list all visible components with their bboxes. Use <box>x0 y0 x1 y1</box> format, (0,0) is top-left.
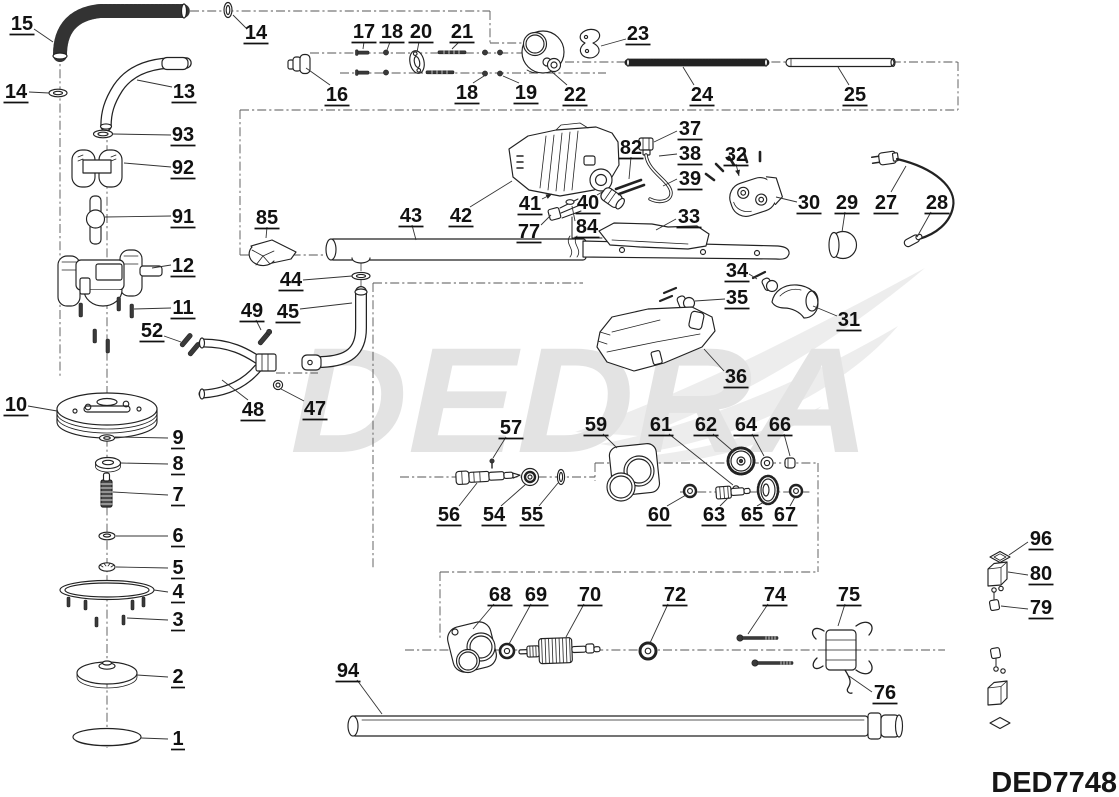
part-35-pin-set <box>660 288 695 309</box>
part-label-76: 76 <box>849 676 898 704</box>
part-8-bearing-ring <box>96 458 121 472</box>
part-label-85: 85 <box>255 207 280 238</box>
part-label-54: 54 <box>482 484 527 526</box>
part-label-44: 44 <box>279 269 353 291</box>
part-number: 37 <box>679 118 701 140</box>
part-47-nut <box>273 380 282 389</box>
leader-line <box>891 166 906 192</box>
part-22-gear-head <box>522 31 564 73</box>
leader-line <box>164 336 181 342</box>
leader-line <box>127 618 168 620</box>
leader-line <box>683 67 694 85</box>
part-15-hose <box>53 4 187 59</box>
part-number: 44 <box>280 269 303 291</box>
part-42-motor-housing <box>509 123 619 196</box>
part-number: 62 <box>695 414 717 436</box>
part-29-collar <box>829 232 857 259</box>
leader-line <box>917 212 931 237</box>
leader-line <box>748 604 768 634</box>
part-label-13: 13 <box>137 80 197 103</box>
part-55-washer <box>557 470 564 485</box>
part-number: 41 <box>519 193 541 215</box>
part-label-37: 37 <box>654 118 703 142</box>
part-number: 5 <box>172 557 183 579</box>
leader-line <box>601 39 626 46</box>
brand-watermark: DEDRA <box>290 268 925 484</box>
part-number: 14 <box>245 22 268 44</box>
part-23-clamp <box>580 29 599 58</box>
part-74-screws <box>737 635 793 666</box>
part-54-bearing <box>522 469 539 486</box>
part-label-28: 28 <box>917 192 950 237</box>
part-number: 23 <box>627 23 649 45</box>
part-16-coupler <box>288 55 310 74</box>
leader-line <box>459 483 477 506</box>
part-94-lower-tube <box>348 713 903 739</box>
part-label-70: 70 <box>566 584 603 637</box>
part-label-11: 11 <box>134 297 196 319</box>
leader-line <box>105 216 171 217</box>
leader-line <box>28 406 57 411</box>
part-65-bevel-gear <box>758 476 778 504</box>
exploded-parts-diagram-page: DEDRA <box>0 0 1119 797</box>
part-number: 4 <box>172 581 184 603</box>
part-93-washer <box>94 130 113 138</box>
part-label-22: 22 <box>551 71 588 106</box>
leader-line <box>113 134 171 135</box>
part-label-8: 8 <box>121 453 185 475</box>
part-number: 16 <box>326 84 348 106</box>
part-label-68: 68 <box>473 584 513 629</box>
part-number: 32 <box>725 144 747 166</box>
part-label-69: 69 <box>509 584 549 644</box>
part-label-94: 94 <box>336 660 383 714</box>
part-label-42: 42 <box>449 181 513 227</box>
part-number: 2 <box>172 666 183 688</box>
part-label-15: 15 <box>10 13 54 42</box>
part-label-14: 14 <box>4 81 50 103</box>
part-label-41: 41 <box>518 193 553 215</box>
part-number: 55 <box>521 504 543 526</box>
part-19-nuts <box>497 50 502 76</box>
part-number: 59 <box>585 414 607 436</box>
part-number: 31 <box>838 309 860 331</box>
part-number: 1 <box>172 728 183 750</box>
part-number: 74 <box>764 584 787 606</box>
watermark-text: DEDRA <box>290 316 870 484</box>
leader-line <box>300 303 352 309</box>
leader-line <box>134 308 171 309</box>
part-number: 61 <box>650 414 672 436</box>
part-label-60: 60 <box>647 495 687 526</box>
part-label-25: 25 <box>838 67 868 106</box>
part-68-end-cap <box>445 619 499 674</box>
part-number: 79 <box>1030 597 1052 619</box>
part-80-carbon-brush <box>988 562 1007 586</box>
leader-line <box>303 276 352 280</box>
part-label-29: 29 <box>835 192 860 232</box>
part-label-56: 56 <box>437 483 478 526</box>
part-label-91: 91 <box>105 206 196 228</box>
part-10-disc <box>57 393 157 438</box>
part-24-flexible-shaft <box>627 59 768 66</box>
part-75-stator <box>813 622 873 693</box>
part-67-bearing <box>790 485 802 497</box>
part-69-bearing <box>500 644 514 658</box>
part-82-pins <box>616 180 644 194</box>
leader-line <box>417 42 419 52</box>
part-number: 94 <box>337 660 360 682</box>
part-number: 42 <box>450 205 472 227</box>
part-number: 63 <box>703 504 725 526</box>
part-number: 82 <box>620 137 642 159</box>
part-label-24: 24 <box>683 67 715 106</box>
part-7-threaded-stud <box>101 473 112 507</box>
part-label-19: 19 <box>503 76 539 104</box>
leader-line <box>1008 572 1028 575</box>
part-number: 80 <box>1030 563 1052 585</box>
part-number: 27 <box>875 192 897 214</box>
part-43-boom-tube <box>326 236 789 263</box>
leader-line <box>113 492 168 495</box>
part-2-pad-disc <box>77 661 137 688</box>
leader-line <box>1001 606 1028 609</box>
part-52-screws <box>179 333 201 357</box>
part-66-cap <box>785 458 795 468</box>
part-number: 28 <box>926 192 948 214</box>
part-49-screw <box>257 328 273 346</box>
part-number: 17 <box>353 21 375 43</box>
part-59-gearbox-housing <box>607 443 660 501</box>
part-label-1: 1 <box>141 728 185 750</box>
leader-line <box>124 163 171 167</box>
part-label-82: 82 <box>619 137 644 179</box>
part-label-27: 27 <box>874 166 907 214</box>
leader-line <box>650 604 668 643</box>
leader-line <box>539 483 558 506</box>
part-number: 7 <box>172 484 183 506</box>
leader-line <box>137 675 168 677</box>
part-62-gear <box>728 448 754 474</box>
part-number: 56 <box>438 504 460 526</box>
leader-line <box>629 157 631 179</box>
part-label-10: 10 <box>4 394 58 416</box>
part-number: 49 <box>241 300 263 322</box>
part-3-pins <box>95 615 125 627</box>
part-number: 52 <box>141 320 163 342</box>
part-label-67: 67 <box>773 497 798 526</box>
exploded-parts-diagram: DEDRA <box>0 0 1119 797</box>
part-number: 48 <box>242 399 264 421</box>
part-number: 36 <box>725 366 747 388</box>
part-label-23: 23 <box>601 23 651 46</box>
part-number: 39 <box>679 168 701 190</box>
part-number: 25 <box>844 84 866 106</box>
part-number: 57 <box>500 417 522 439</box>
part-number: 84 <box>576 216 599 238</box>
part-label-75: 75 <box>837 584 862 626</box>
part-70-armature <box>519 637 601 665</box>
part-label-74: 74 <box>748 584 788 634</box>
part-number: 66 <box>769 414 791 436</box>
part-28-cord-grommet <box>903 232 923 248</box>
part-64-washer <box>761 457 773 469</box>
part-label-43: 43 <box>399 205 424 240</box>
part-number: 30 <box>798 192 820 214</box>
part-label-34: 34 <box>725 260 758 282</box>
part-6-nut <box>99 532 115 540</box>
part-number: 3 <box>172 609 183 631</box>
leader-line <box>838 67 849 85</box>
part-label-18: 18 <box>380 21 405 50</box>
part-label-32: 32 <box>724 144 749 176</box>
leader-line <box>566 604 584 637</box>
part-number: 67 <box>774 504 796 526</box>
part-label-18: 18 <box>455 76 485 104</box>
part-number: 20 <box>410 21 432 43</box>
part-label-49: 49 <box>240 300 265 330</box>
part-number: 45 <box>277 301 299 323</box>
leader-line <box>115 437 168 438</box>
part-number: 70 <box>579 584 601 606</box>
part-number: 38 <box>679 143 701 165</box>
part-number: 65 <box>741 504 763 526</box>
part-number: 68 <box>489 584 511 606</box>
part-number: 43 <box>400 205 422 227</box>
part-number: 69 <box>525 584 547 606</box>
part-12-bracket-assembly <box>58 250 162 306</box>
part-number: 40 <box>577 192 599 214</box>
part-label-63: 63 <box>702 497 730 526</box>
part-label-38: 38 <box>659 143 703 165</box>
part-number: 85 <box>256 207 278 229</box>
part-number: 8 <box>172 453 183 475</box>
part-number: 10 <box>5 394 27 416</box>
part-17-screws <box>356 50 370 76</box>
part-44-ring <box>352 272 370 279</box>
leader-line <box>141 738 168 739</box>
part-31-guard <box>772 285 818 318</box>
part-label-72: 72 <box>650 584 688 643</box>
part-label-3: 3 <box>127 609 185 631</box>
part-label-55: 55 <box>520 483 559 526</box>
leader-line <box>470 181 512 207</box>
leader-line <box>842 212 845 232</box>
part-20-flange <box>408 49 426 74</box>
part-1-pad <box>73 729 141 747</box>
part-number: 96 <box>1030 528 1052 550</box>
leader-line <box>137 80 172 87</box>
model-code: DED7748 <box>991 767 1117 797</box>
part-label-2: 2 <box>137 666 185 688</box>
part-number: 60 <box>648 504 670 526</box>
part-number: 6 <box>172 525 183 547</box>
part-96-shim <box>990 552 1010 563</box>
leader-line <box>29 92 49 93</box>
leader-line <box>695 299 725 301</box>
part-label-14: 14 <box>233 15 269 44</box>
part-label-80: 80 <box>1008 563 1054 585</box>
part-label-4: 4 <box>154 581 185 603</box>
part-number: 91 <box>172 206 194 228</box>
leader-line <box>838 604 845 626</box>
part-number: 12 <box>172 255 194 277</box>
part-label-93: 93 <box>113 124 196 146</box>
part-label-33: 33 <box>656 206 702 230</box>
part-number: 93 <box>172 124 194 146</box>
part-48-cable-fork <box>200 338 277 399</box>
part-25-inner-rod <box>786 59 895 67</box>
leader-line <box>121 463 168 464</box>
part-number: 54 <box>483 504 506 526</box>
part-number: 18 <box>456 82 478 104</box>
part-37-38-39-capacitor-cable <box>639 138 671 201</box>
part-85-deflector <box>249 240 296 266</box>
part-number: 9 <box>172 427 183 449</box>
part-number: 35 <box>726 287 748 309</box>
part-label-30: 30 <box>776 192 822 214</box>
leader-arrowhead-icon <box>735 170 740 176</box>
part-label-21: 21 <box>450 21 475 49</box>
part-number: 72 <box>664 584 686 606</box>
part-label-79: 79 <box>1001 597 1054 619</box>
part-label-6: 6 <box>116 525 185 547</box>
part-number: 34 <box>726 260 749 282</box>
part-number: 33 <box>678 206 700 228</box>
part-number: 77 <box>518 221 540 243</box>
part-5-lock-washer <box>99 563 115 571</box>
part-label-7: 7 <box>113 484 185 506</box>
part-label-92: 92 <box>124 157 196 179</box>
part-label-52: 52 <box>140 320 182 342</box>
part-number: 24 <box>691 84 714 106</box>
part-number: 13 <box>173 81 195 103</box>
leader-line <box>654 131 677 142</box>
part-number: 29 <box>836 192 858 214</box>
part-label-65: 65 <box>740 502 765 526</box>
part-21-threaded-rods <box>426 51 466 74</box>
part-label-40: 40 <box>576 191 605 214</box>
part-92-clamp <box>72 150 122 187</box>
leader-line <box>849 676 872 692</box>
part-number: 19 <box>515 82 537 104</box>
part-number: 92 <box>172 157 194 179</box>
part-number: 21 <box>451 21 473 43</box>
part-label-35: 35 <box>695 287 750 309</box>
leader-line <box>34 29 53 42</box>
leader-line <box>541 215 551 225</box>
part-79-brush-spring <box>989 586 1003 610</box>
part-number: 18 <box>381 21 403 43</box>
leader-line <box>659 154 677 156</box>
part-number: 14 <box>5 81 28 103</box>
leader-line <box>1009 542 1028 555</box>
part-number: 22 <box>564 84 586 106</box>
leader-line <box>357 680 382 714</box>
part-number: 75 <box>838 584 860 606</box>
leader-line <box>154 590 168 592</box>
part-label-17: 17 <box>352 21 377 49</box>
part-number: 47 <box>304 398 326 420</box>
leader-line <box>501 484 526 506</box>
part-number: 15 <box>11 13 33 35</box>
part-label-16: 16 <box>306 68 350 106</box>
part-72-bearing <box>640 643 656 659</box>
spare-brush-set <box>988 647 1010 728</box>
part-label-20: 20 <box>409 21 434 52</box>
part-label-5: 5 <box>116 557 185 579</box>
leader-line <box>306 68 330 85</box>
part-number: 64 <box>735 414 758 436</box>
part-34-pin-set <box>753 272 778 292</box>
part-9-washer <box>100 435 115 441</box>
leader-line <box>116 567 168 568</box>
part-label-96: 96 <box>1009 528 1054 555</box>
part-number: 11 <box>172 297 193 319</box>
part-91-joint <box>87 196 105 244</box>
part-number: 76 <box>874 682 896 704</box>
leader-line <box>509 604 531 644</box>
